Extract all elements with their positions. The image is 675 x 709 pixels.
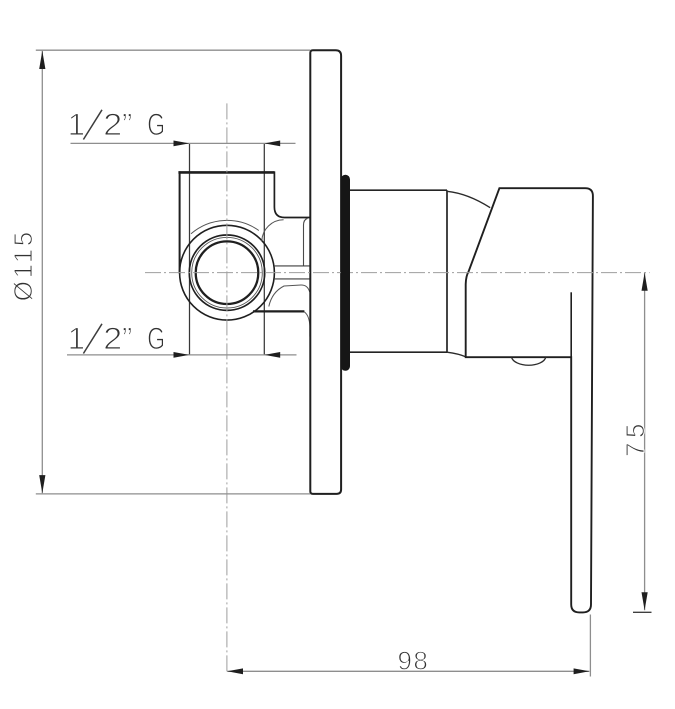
- svg-text:”: ”: [122, 321, 132, 356]
- svg-text:2: 2: [103, 107, 122, 142]
- svg-text:”: ”: [122, 107, 132, 142]
- svg-text:98: 98: [398, 645, 430, 675]
- svg-text:75: 75: [620, 419, 650, 457]
- svg-text:G: G: [147, 107, 165, 142]
- svg-text:Ø115: Ø115: [8, 229, 38, 301]
- svg-text:G: G: [147, 321, 165, 356]
- svg-text:1: 1: [68, 107, 85, 142]
- svg-text:1: 1: [68, 321, 85, 356]
- svg-text:2: 2: [103, 321, 122, 356]
